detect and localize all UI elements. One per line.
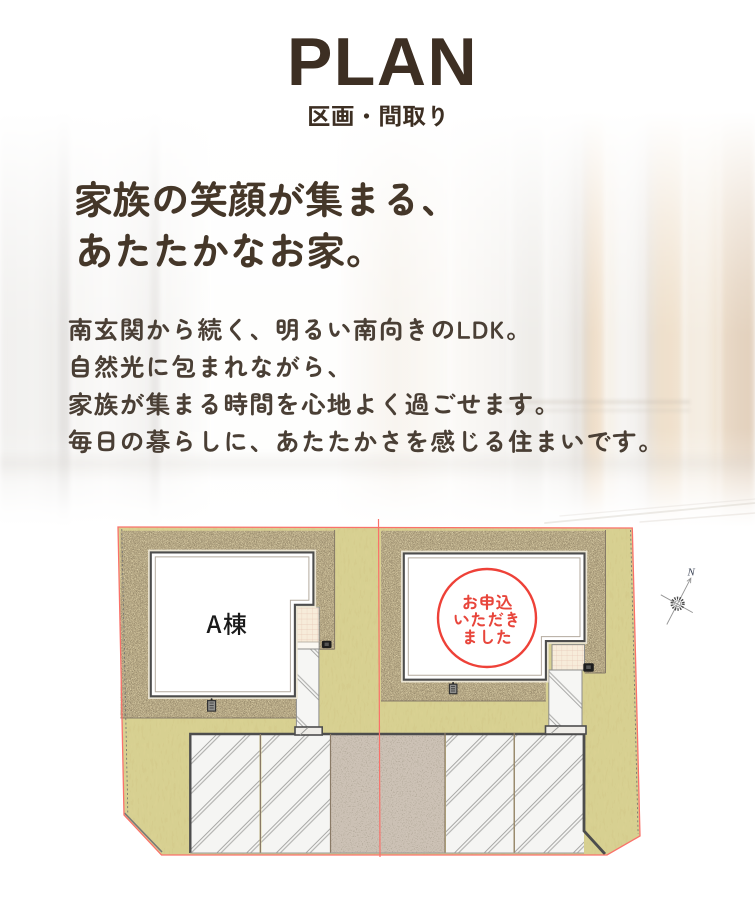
svg-text:N: N <box>687 567 696 579</box>
